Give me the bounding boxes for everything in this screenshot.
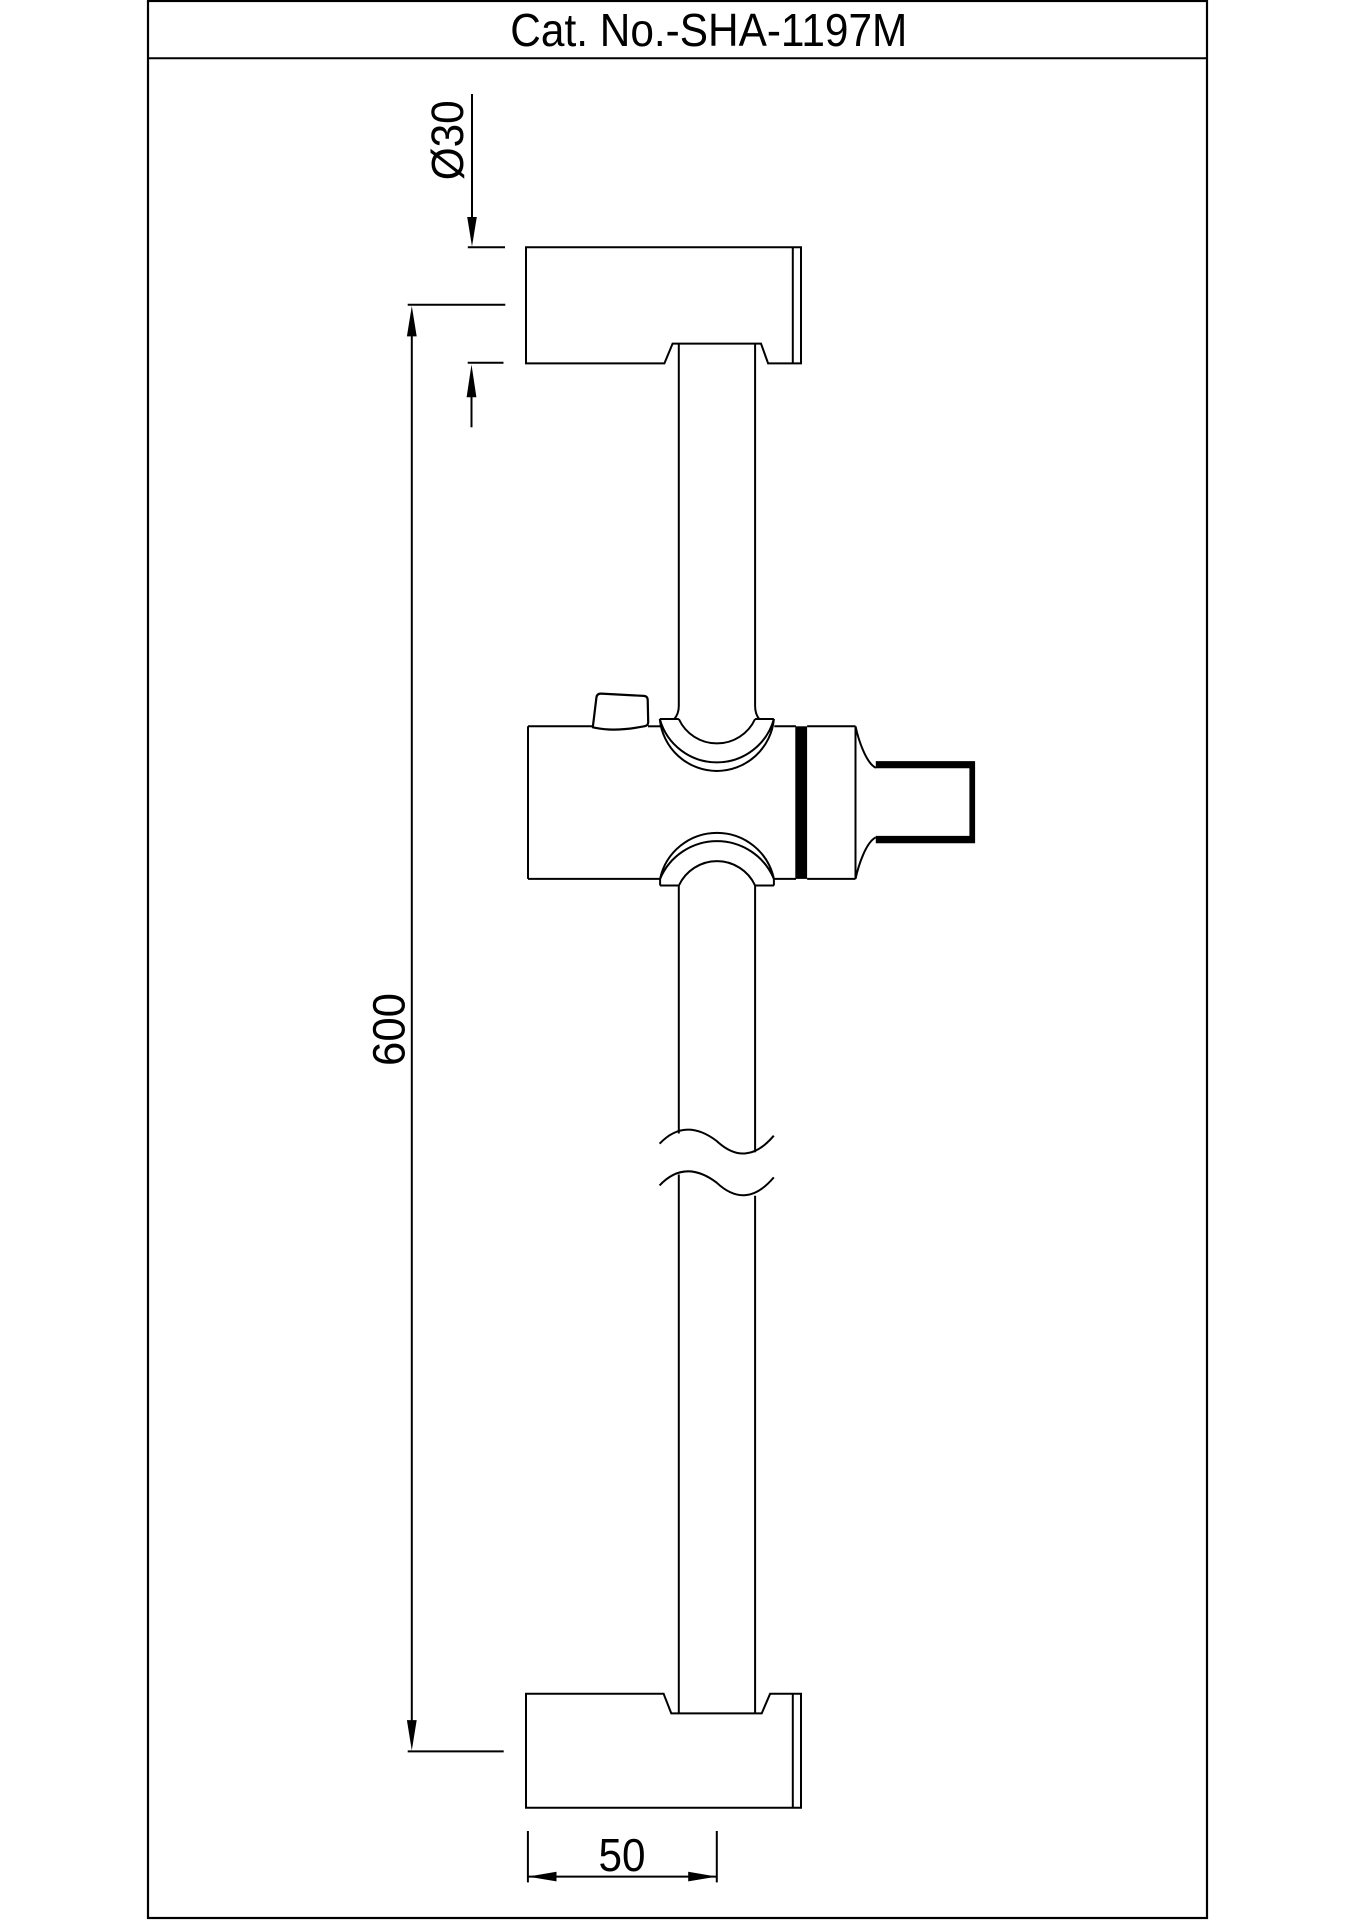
svg-text:600: 600 [363,993,414,1066]
svg-text:Ø30: Ø30 [422,100,473,180]
svg-text:Cat. No.-SHA-1197M: Cat. No.-SHA-1197M [510,4,907,56]
svg-text:50: 50 [599,1829,646,1881]
